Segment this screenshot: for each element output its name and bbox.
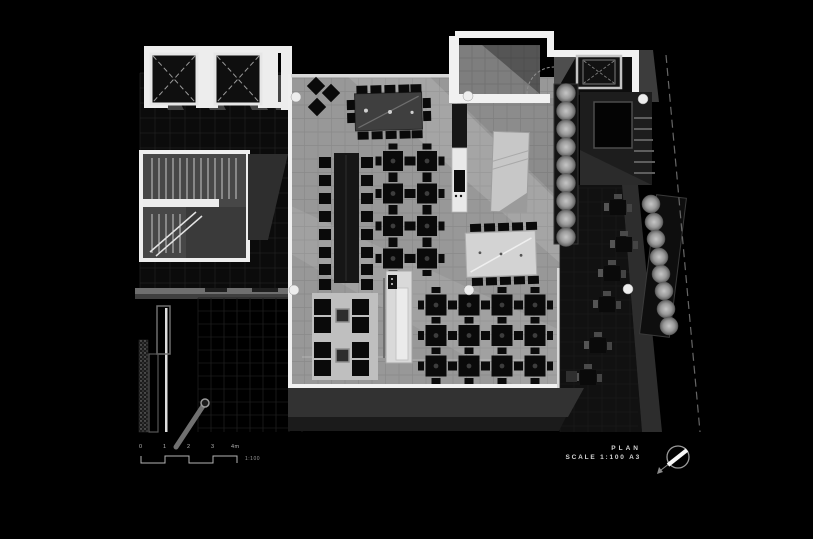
elevator-shaft-entry — [577, 56, 621, 88]
coffee-table — [336, 309, 349, 322]
courtyard-lower-left — [139, 298, 302, 447]
ramp — [176, 406, 203, 447]
drawing-scale-label: SCALE 1:100 A3 — [565, 453, 641, 462]
floor-plan-canvas — [0, 0, 813, 539]
elevator-shaft-2 — [215, 54, 261, 104]
scale-tick-1: 1 — [163, 444, 167, 450]
dining-table-grid-right — [418, 287, 553, 384]
lounge-seating — [312, 293, 378, 380]
service-counter — [452, 104, 467, 212]
coffee-table — [336, 349, 349, 362]
scale-tick-0: 0 — [139, 444, 143, 450]
drawing-sheet: 0 1 2 3 4m 1:100 PLAN SCALE 1:100 A3 — [0, 0, 813, 539]
drawing-title: PLAN — [565, 444, 641, 453]
scale-tick-2: 2 — [187, 444, 191, 450]
street-trees-upper — [557, 84, 576, 247]
stair-feature — [491, 131, 530, 212]
scale-ratio-label: 1:100 — [245, 456, 260, 462]
scale-bar — [141, 456, 237, 463]
water-feature — [594, 102, 632, 148]
elevator-bank-left — [144, 46, 292, 110]
bar-counter — [383, 271, 412, 363]
north-arrow-icon — [657, 446, 689, 474]
scale-tick-3: 3 — [211, 444, 215, 450]
elevator-shaft-1 — [151, 54, 197, 104]
title-block: PLAN SCALE 1:100 A3 — [565, 444, 641, 462]
scale-tick-4: 4m — [231, 444, 240, 450]
